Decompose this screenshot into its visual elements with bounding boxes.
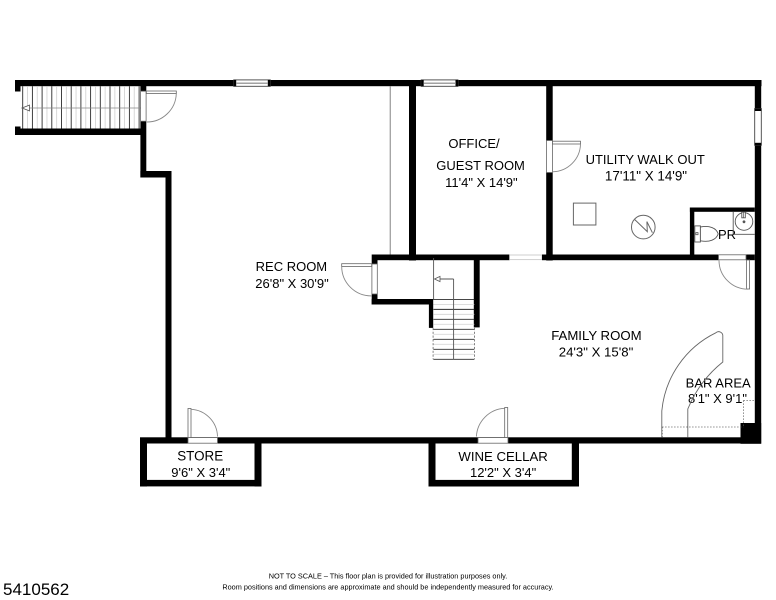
svg-text:24'3" X 15'8": 24'3" X 15'8" [559,345,634,360]
svg-text:17'11" X 14'9": 17'11" X 14'9" [605,169,687,184]
svg-text:NOT TO SCALE – This floor plan: NOT TO SCALE – This floor plan is provid… [269,572,508,581]
svg-text:FAMILY ROOM: FAMILY ROOM [551,328,641,343]
svg-text:8'1" X 9'1": 8'1" X 9'1" [688,391,747,406]
svg-text:5410562: 5410562 [3,580,69,599]
svg-text:26'8" X 30'9": 26'8" X 30'9" [255,276,329,291]
svg-text:REC ROOM: REC ROOM [256,259,328,274]
svg-text:STORE: STORE [177,448,223,463]
svg-text:OFFICE/: OFFICE/ [448,136,500,151]
svg-text:GUEST ROOM: GUEST ROOM [436,158,525,173]
svg-text:11'4" X 14'9": 11'4" X 14'9" [445,175,518,190]
svg-text:BAR AREA: BAR AREA [686,376,751,391]
svg-text:UTILITY WALK OUT: UTILITY WALK OUT [586,152,705,167]
svg-text:WINE CELLAR: WINE CELLAR [458,449,547,464]
svg-text:12'2" X 3'4": 12'2" X 3'4" [470,465,537,480]
svg-text:Room positions and dimensions: Room positions and dimensions are approx… [222,582,553,591]
svg-text:9'6" X 3'4": 9'6" X 3'4" [171,465,230,480]
